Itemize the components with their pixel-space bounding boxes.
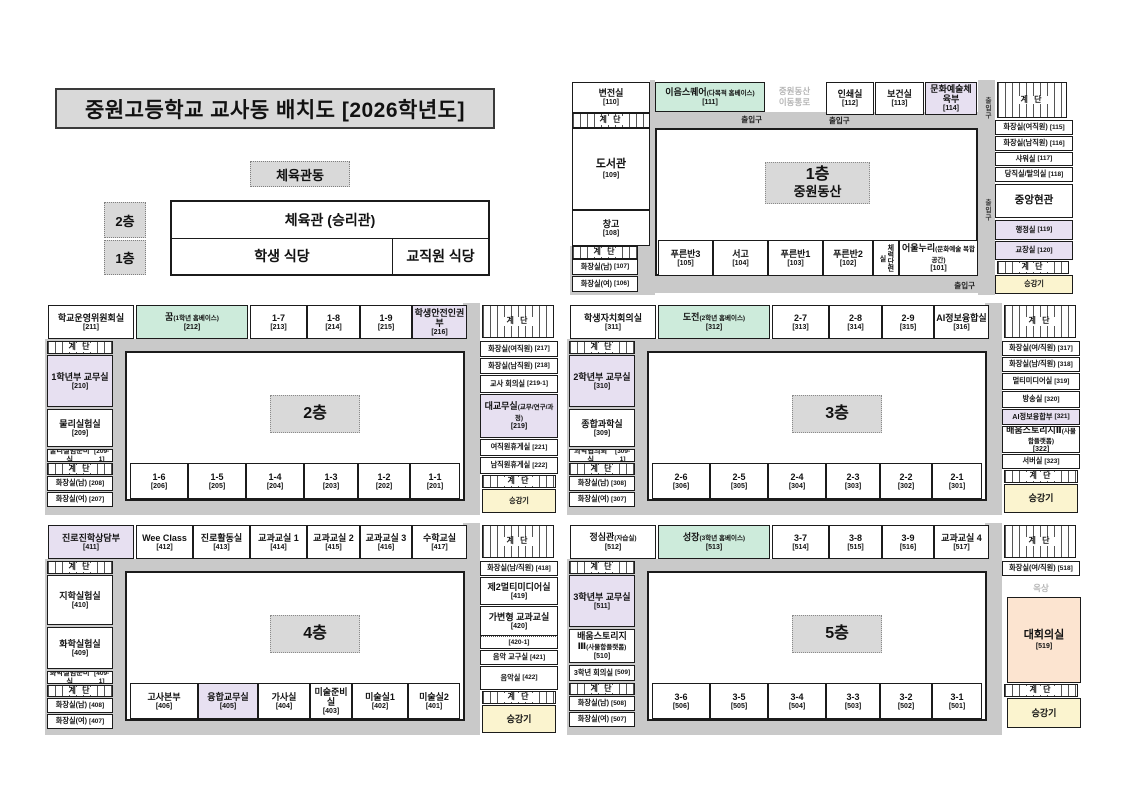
f5-room-506: 3-6[506] [652,683,710,719]
f1-entrance-label-vexit2: 출입구 [978,188,995,232]
floor-plan-f2: 학교운영위원회실[211]꿈(1학년 홈베이스)[212]1-7[213]1-8… [45,303,560,515]
f3-room-309-1: 과학협의회실[309-1] [569,449,635,462]
f5-room-517: 교과교실 4[517] [934,525,989,559]
f5-room-502: 3-2[502] [880,683,932,719]
f1-room-foyer: 중앙현관 [995,184,1073,218]
f5-room-518: 화장실(여/직원)[518] [1002,561,1080,576]
f5-floor-label: 5층 [792,615,882,653]
f1-room-106: 화장실(여)[106] [572,276,638,292]
f2-room-212: 꿈(1학년 홈베이스)[212] [136,305,248,339]
f4-elevator: 승강기 [482,705,556,733]
f1-room-105: 푸른반3[105] [658,240,713,276]
f2-room-215: 1-9[215] [360,305,412,339]
f4-room-407: 화장실(여)[407] [47,714,113,729]
f1-room-109: 도서관[109] [572,128,650,210]
f4-room-411: 진로진학상담부[411] [48,525,134,559]
f3-stairs-s2: 계 단 [1004,470,1078,483]
f4-room-416: 교과교실 3[416] [360,525,412,559]
student-cafeteria: 학생 식당 [172,239,392,275]
f2-floor-label: 2층 [270,395,360,433]
f5-room-512: 정심관(자습실)[512] [570,525,656,559]
f5-stairs-s4: 계 단 [569,683,635,695]
f1-room-119: 행정실[119] [995,220,1073,240]
f5-room-509: 3학년 회의실[509] [569,665,635,681]
f4-room-409: 화학실험실[409] [47,627,113,669]
f2-room-206: 1-6[206] [130,463,188,499]
f2-room-204: 1-4[204] [246,463,304,499]
floor-plan-f5: 정심관(자습실)[512]성장(3학년 홈베이스)[513]3-7[514]3-… [567,523,1082,735]
f3-room-305: 2-5[305] [710,463,768,499]
f1-room-110: 변전실[110] [572,82,650,113]
f2-room-217: 화장실(여직원)[217] [480,341,558,357]
gym-floor1-label: 1층 [104,240,146,275]
f4-stairs-s4: 계 단 [47,685,113,697]
f1-room-103: 푸른반1[103] [768,240,823,276]
f1-room-115: 화장실(여직원)[115] [995,120,1073,135]
floor-plan-page: 중원고등학교 교사동 배치도 [2026학년도] 체육관동 2층 1층 체육관 … [0,0,1121,793]
f1-room-112: 인쇄실[112] [826,82,874,115]
floor-plan-f4: 진로진학상담부[411]Wee Class[412]진로활동실[413]교과교실… [45,523,560,735]
f2-stairs-s3: 계 단 [47,341,113,354]
f4-room-410: 지학실험실[410] [47,575,113,625]
f1-stairs-s1: 계 단 [572,113,650,128]
f5-room-508: 화장실(남)[508] [569,696,635,711]
f3-room-321: AI정보융합부[321] [1002,409,1080,425]
f3-stairs-s3: 계 단 [569,341,635,354]
f5-room-514: 3-7[514] [772,525,829,559]
f1-stairs-s2: 계 단 [572,246,638,259]
f4-room-422: 음악실[422] [480,666,558,690]
f1-room-118: 당직실/탈의실[118] [995,167,1073,182]
f2-room-208: 화장실(남)[208] [47,476,113,491]
f4-room-417: 수학교실[417] [412,525,467,559]
f3-elevator: 승강기 [1004,484,1078,513]
f5-room-503: 3-3[503] [826,683,880,719]
f2-room-205: 1-5[205] [188,463,246,499]
f3-stairs-s1: 계 단 [1004,305,1076,338]
f3-room-317: 화장실(여/직원)[317] [1002,341,1080,356]
f3-room-320: 방송실[320] [1002,391,1080,408]
f4-room-401: 미술실2[401] [408,683,460,719]
f2-stairs-s2: 계 단 [482,475,556,488]
f1-stairs-s3: 계 단 [997,82,1067,118]
f4-stairs-s2: 계 단 [482,691,556,704]
f2-room-218: 화장실(남직원)[218] [480,358,558,374]
f5-room-501: 3-1[501] [932,683,982,719]
f2-room-219-1: 교사 회의실[219-1] [480,375,558,393]
f4-room-405: 융합교무실[405] [198,683,258,719]
f3-room-301: 2-1[301] [932,463,982,499]
f4-room-421: 음악 교구실[421] [480,650,558,665]
f3-room-318: 화장실(남/직원)[318] [1002,357,1080,372]
f3-room-315: 2-9[315] [882,305,934,339]
f1-room-108: 창고[108] [572,210,650,246]
f3-room-314: 2-8[314] [829,305,882,339]
f3-room-323: 서버실[323] [1002,454,1080,469]
f5-stairs-s3: 계 단 [569,561,635,574]
gym-hall: 체육관 (승리관) [172,202,488,238]
f3-room-307: 화장실(여)[307] [569,492,635,507]
f1-room-120: 교장실[120] [995,241,1073,260]
f2-room-210: 1학년부 교무실[210] [47,355,113,407]
f2-room-219: 대교무실(교무/연구/과정)[219] [480,394,558,438]
f1-entrance-label-vexit1: 출입구 [978,86,995,130]
f3-room-303: 2-3[303] [826,463,880,499]
gym-building-label: 체육관동 [250,161,350,187]
f5-room-510: 배움스토리지Ⅲ(사물함플랫폼)[510] [569,629,635,663]
f3-room-302: 2-2[302] [880,463,932,499]
f3-room-308: 화장실(남)[308] [569,476,635,491]
f1-room-114: 문화예술체육부[114] [925,82,977,115]
f5-room-519: 대회의실[519] [1007,597,1081,683]
f1-entrance-label-exit1: 출입구 [655,112,765,127]
f4-room-408: 화장실(남)[408] [47,698,113,713]
f4-room-403: 미술준비실[403] [310,683,352,719]
f1-entrance-label-exit3: 출입구 [888,278,978,292]
f4-room-413: 진로활동실[413] [193,525,250,559]
f4-room-419: 제2멀티미디어실[419] [480,577,558,605]
f2-room-202: 1-2[202] [358,463,410,499]
f5-note-roof: 옥상 [1002,581,1080,595]
f3-room-310: 2학년부 교무실[310] [569,355,635,407]
f4-room-409-1: 화학실험준비실[409-1] [47,671,113,684]
f2-room-214: 1-8[214] [307,305,360,339]
f4-room-420-1: [420-1] [480,636,558,649]
f5-elevator: 승강기 [1007,698,1081,728]
f2-room-213: 1-7[213] [250,305,307,339]
f2-elevator: 승강기 [482,489,556,513]
f4-room-406: 고사본부[406] [130,683,198,719]
f2-stairs-s4: 계 단 [47,463,113,475]
f3-room-319: 멀티미디어실[319] [1002,373,1080,390]
f1-floor-label: 1층중원동산 [765,162,870,204]
gym-building-box: 체육관 (승리관) 학생 식당 교직원 식당 [170,200,490,276]
f2-room-201: 1-1[201] [410,463,460,499]
floor-plan-f3: 학생자치회의실[311]도전(2학년 홈베이스)[312]2-7[313]2-8… [567,303,1082,515]
f5-room-507: 화장실(여)[507] [569,712,635,727]
f5-room-504: 3-4[504] [768,683,826,719]
staff-cafeteria: 교직원 식당 [392,239,488,275]
f3-room-313: 2-7[313] [772,305,829,339]
f3-room-312: 도전(2학년 홈베이스)[312] [658,305,770,339]
f4-room-415: 교과교실 2[415] [307,525,360,559]
f2-room-211: 학교운영위원회실[211] [48,305,134,339]
f5-room-511: 3학년부 교무실[511] [569,575,635,627]
f2-room-221: 여직원휴게실[221] [480,439,558,456]
f1-room-102: 푸른반2[102] [823,240,873,276]
f4-room-404: 가사실[404] [258,683,310,719]
f5-room-513: 성장(3학년 홈베이스)[513] [658,525,770,559]
f5-stairs-s1: 계 단 [1004,525,1076,558]
f4-room-414: 교과교실 1[414] [250,525,307,559]
f4-floor-label: 4층 [270,615,360,653]
floor-plan-f1: 변전실[110]계 단도서관[109]창고[108]계 단화장실(남)[107]… [570,80,1077,295]
f5-stairs-s2: 계 단 [1004,684,1078,697]
f1-note-gtext: 중원동산 이동통로 [767,82,822,112]
f2-room-203: 1-3[203] [304,463,358,499]
f5-room-516: 3-9[516] [882,525,934,559]
f2-room-209-1: 물리실험준비실[209-1] [47,449,113,462]
f1-room-116: 화장실(남직원)[116] [995,136,1073,151]
f2-stairs-s1: 계 단 [482,305,554,338]
f1-room-101: 어울누리(문화예술 복합공간)[101] [899,240,978,276]
f1-room-fitness: 체력단련실 [873,240,899,276]
f1-room-113: 보건실[113] [875,82,924,115]
f2-room-207: 화장실(여)[207] [47,492,113,507]
f4-stairs-s3: 계 단 [47,561,113,574]
f1-elevator: 승강기 [995,275,1073,294]
f4-room-402: 미술실1[402] [352,683,408,719]
f2-room-222: 남직원휴게실[222] [480,457,558,474]
f3-room-311: 학생자치회의실[311] [570,305,656,339]
f4-room-420: 가변형 교과교실[420] [480,606,558,636]
f1-stairs-s4: 계 단 [997,261,1069,274]
f3-room-309: 종합과학실[309] [569,409,635,447]
f1-room-107: 화장실(남)[107] [572,259,638,275]
f3-room-322: 배움스토리지Ⅱ(사물함플랫폼)[322] [1002,426,1080,453]
f4-stairs-s1: 계 단 [482,525,554,558]
f5-room-515: 3-8[515] [829,525,882,559]
page-title: 중원고등학교 교사동 배치도 [2026학년도] [55,88,495,129]
f4-room-418: 화장실(남/직원)[418] [480,561,558,576]
f2-room-216: 학생안전인권부[216] [412,305,467,339]
f3-floor-label: 3층 [792,395,882,433]
f3-stairs-s4: 계 단 [569,463,635,475]
f3-room-306: 2-6[306] [652,463,710,499]
f1-room-117: 샤워실[117] [995,152,1073,166]
f1-entrance-label-exit2: 출입구 [826,114,878,127]
f2-room-209: 물리실험실[209] [47,409,113,447]
gym-floor2-label: 2층 [104,202,146,238]
f4-room-412: Wee Class[412] [136,525,193,559]
f3-room-304: 2-4[304] [768,463,826,499]
f5-room-505: 3-5[505] [710,683,768,719]
f3-room-316: AI정보융합실[316] [934,305,989,339]
f1-room-111: 이음스퀘어(다목적 홈베이스)[111] [655,82,765,112]
f1-room-104: 서고[104] [713,240,768,276]
